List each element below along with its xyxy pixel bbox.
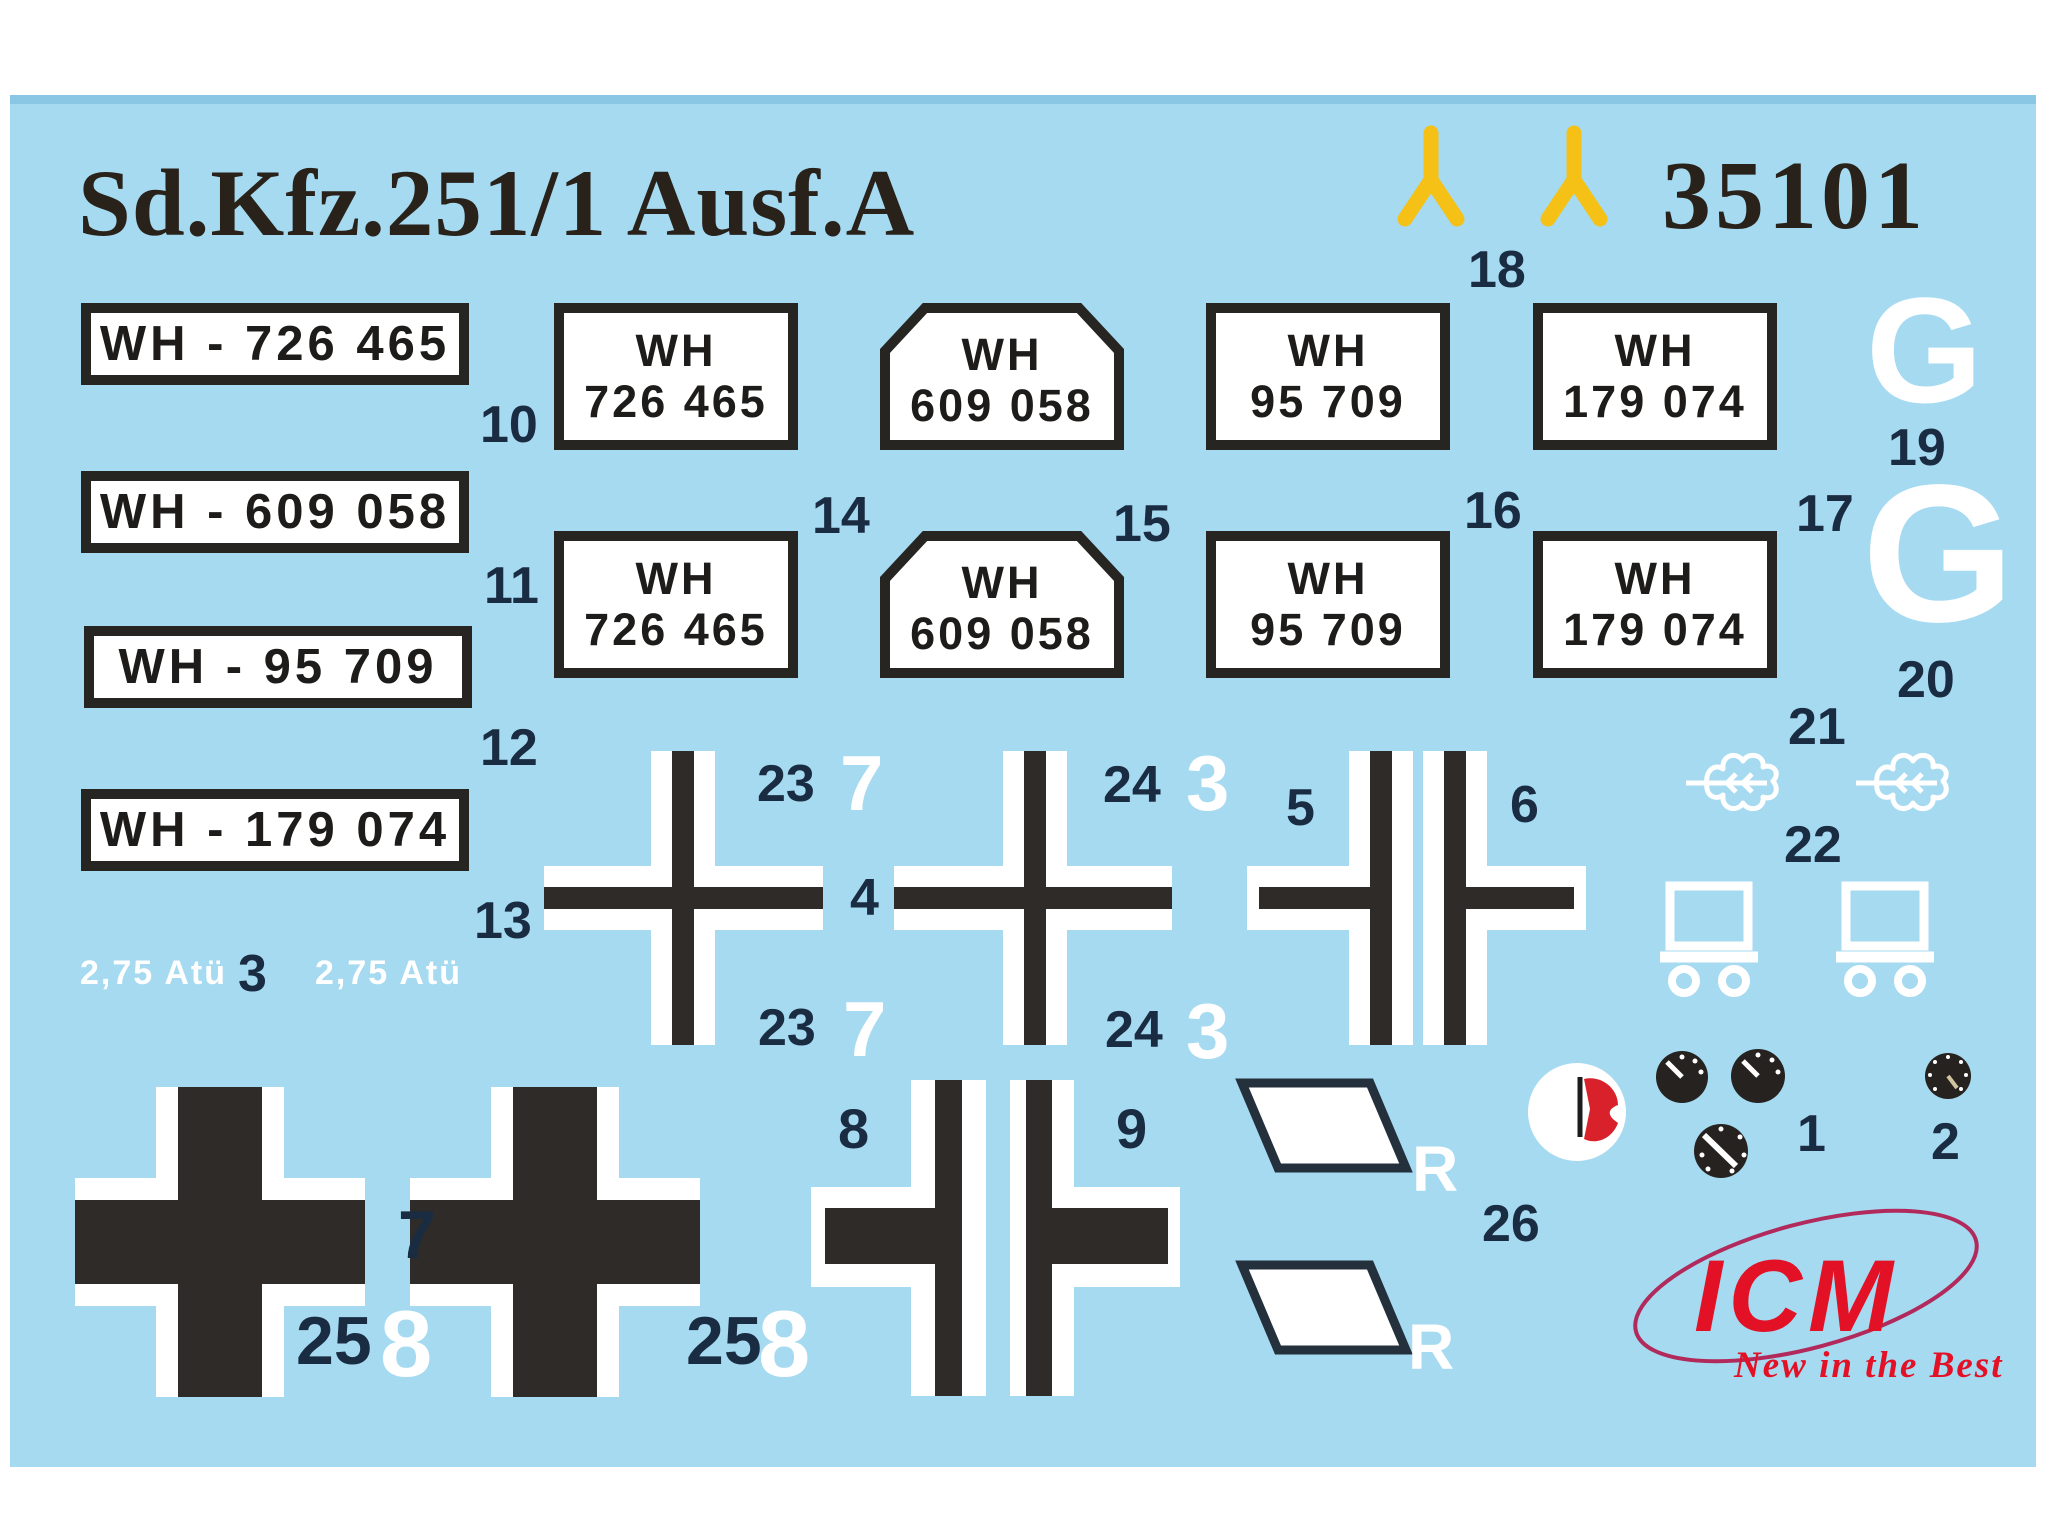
decal-number-26: 26 xyxy=(1482,1194,1540,1254)
registration-bar: WH - 726 465 xyxy=(81,303,469,385)
decal-number-13: 13 xyxy=(474,891,532,951)
decal-number-9: 9 xyxy=(1116,1096,1147,1161)
plate-number: 95 709 xyxy=(1250,605,1406,655)
number-plate: WH179 074 xyxy=(1533,303,1777,450)
plate-prefix: WH xyxy=(1615,554,1696,604)
decal-number-6: 6 xyxy=(1510,775,1539,835)
split-balkenkreuz-decal xyxy=(1010,1080,1180,1396)
plate-number: 179 074 xyxy=(1563,377,1747,427)
decal-number-14: 14 xyxy=(812,486,870,546)
plate-number: 726 465 xyxy=(584,605,768,655)
plate-number: 609 058 xyxy=(910,381,1094,431)
brand-tagline: New in the Best xyxy=(1734,1344,2004,1387)
brand-logo: ICM xyxy=(1694,1238,1899,1355)
plate-prefix: WH xyxy=(636,554,717,604)
decal-number-21: 21 xyxy=(1788,697,1846,757)
decal-number-3-white: 3 xyxy=(1186,986,1229,1077)
decal-number-5: 5 xyxy=(1286,778,1315,838)
trailer-icon xyxy=(1836,878,1934,1000)
number-plate: WH95 709 xyxy=(1206,303,1450,450)
compass-icon xyxy=(1528,1063,1626,1161)
plate-prefix: WH xyxy=(1288,326,1369,376)
decal-number-22: 22 xyxy=(1784,815,1842,875)
trailer-icon xyxy=(1660,878,1758,1000)
number-plate: WH95 709 xyxy=(1206,531,1450,678)
gauge-icon xyxy=(1654,1048,1710,1106)
registration-bar: WH - 609 058 xyxy=(81,471,469,553)
plate-prefix: WH xyxy=(962,330,1043,380)
decal-number-20: 20 xyxy=(1897,650,1955,710)
plate-number: 726 465 xyxy=(584,377,768,427)
plate-number: 179 074 xyxy=(1563,605,1747,655)
decal-number-25: 25 xyxy=(686,1302,762,1380)
decal-number-1: 1 xyxy=(1797,1104,1826,1164)
decal-number-4: 4 xyxy=(850,868,879,928)
decal-number-16: 16 xyxy=(1464,481,1522,541)
decal-number-18: 18 xyxy=(1468,240,1526,300)
decal-number-24: 24 xyxy=(1103,755,1161,815)
number-plate-pentagon: WH609 058 xyxy=(880,303,1124,450)
decal-number-7-white: 7 xyxy=(840,738,883,829)
pressure-decal: 2,75 Atü xyxy=(315,954,462,993)
decal-number-25: 25 xyxy=(296,1302,372,1380)
decal-number-2: 2 xyxy=(1931,1112,1960,1172)
oak-leaf-icon xyxy=(1853,745,1955,821)
decal-number-3-white: 3 xyxy=(1186,738,1229,829)
decal-number-17: 17 xyxy=(1796,484,1854,544)
oak-leaf-icon xyxy=(1683,745,1785,821)
decal-number-7: 7 xyxy=(398,1196,436,1274)
decal-number-24: 24 xyxy=(1105,1000,1163,1060)
decal-number-7-white: 7 xyxy=(843,984,886,1075)
decal-number-8-white: 8 xyxy=(758,1290,810,1398)
number-plate-pentagon: WH609 058 xyxy=(880,531,1124,678)
number-plate: WH726 465 xyxy=(554,303,798,450)
rhombus-decal xyxy=(1228,1076,1418,1176)
gauge-icon xyxy=(1729,1046,1787,1106)
plate-prefix: WH xyxy=(962,558,1043,608)
decal-letter-r: R xyxy=(1408,1310,1454,1384)
plate-prefix: WH xyxy=(636,326,717,376)
antenna-icon xyxy=(1393,124,1469,230)
g-letter-decal: G xyxy=(1862,478,2014,631)
gauge-icon xyxy=(1923,1050,1973,1102)
antenna-icon xyxy=(1536,124,1612,230)
number-plate: WH179 074 xyxy=(1533,531,1777,678)
rhombus-decal xyxy=(1228,1258,1418,1358)
decal-number-8-white: 8 xyxy=(380,1290,432,1398)
plate-prefix: WH xyxy=(1288,554,1369,604)
registration-bar: WH - 179 074 xyxy=(81,789,469,871)
decal-number-23: 23 xyxy=(757,754,815,814)
decal-number-23: 23 xyxy=(758,998,816,1058)
decal-number-3: 3 xyxy=(238,944,267,1004)
half-balkenkreuz-decal xyxy=(1423,751,1586,1045)
gauge-icon xyxy=(1692,1121,1750,1181)
decal-number-10: 10 xyxy=(480,395,538,455)
registration-bar: WH - 95 709 xyxy=(84,626,472,708)
g-letter-decal: G xyxy=(1866,292,1983,409)
balkenkreuz-thick-decal xyxy=(410,1087,700,1397)
decal-number-8: 8 xyxy=(838,1096,869,1161)
number-plate: WH726 465 xyxy=(554,531,798,678)
page-title: Sd.Kfz.251/1 Ausf.A xyxy=(78,148,915,258)
decal-number-11: 11 xyxy=(484,556,539,616)
plate-number: 95 709 xyxy=(1250,377,1406,427)
decal-number-12: 12 xyxy=(480,718,538,778)
half-balkenkreuz-decal xyxy=(1247,751,1413,1045)
decal-letter-r: R xyxy=(1412,1132,1458,1206)
plate-prefix: WH xyxy=(1615,326,1696,376)
pressure-decal: 2,75 Atü xyxy=(80,954,227,993)
kit-number: 35101 xyxy=(1662,140,1927,252)
plate-number: 609 058 xyxy=(910,609,1094,659)
